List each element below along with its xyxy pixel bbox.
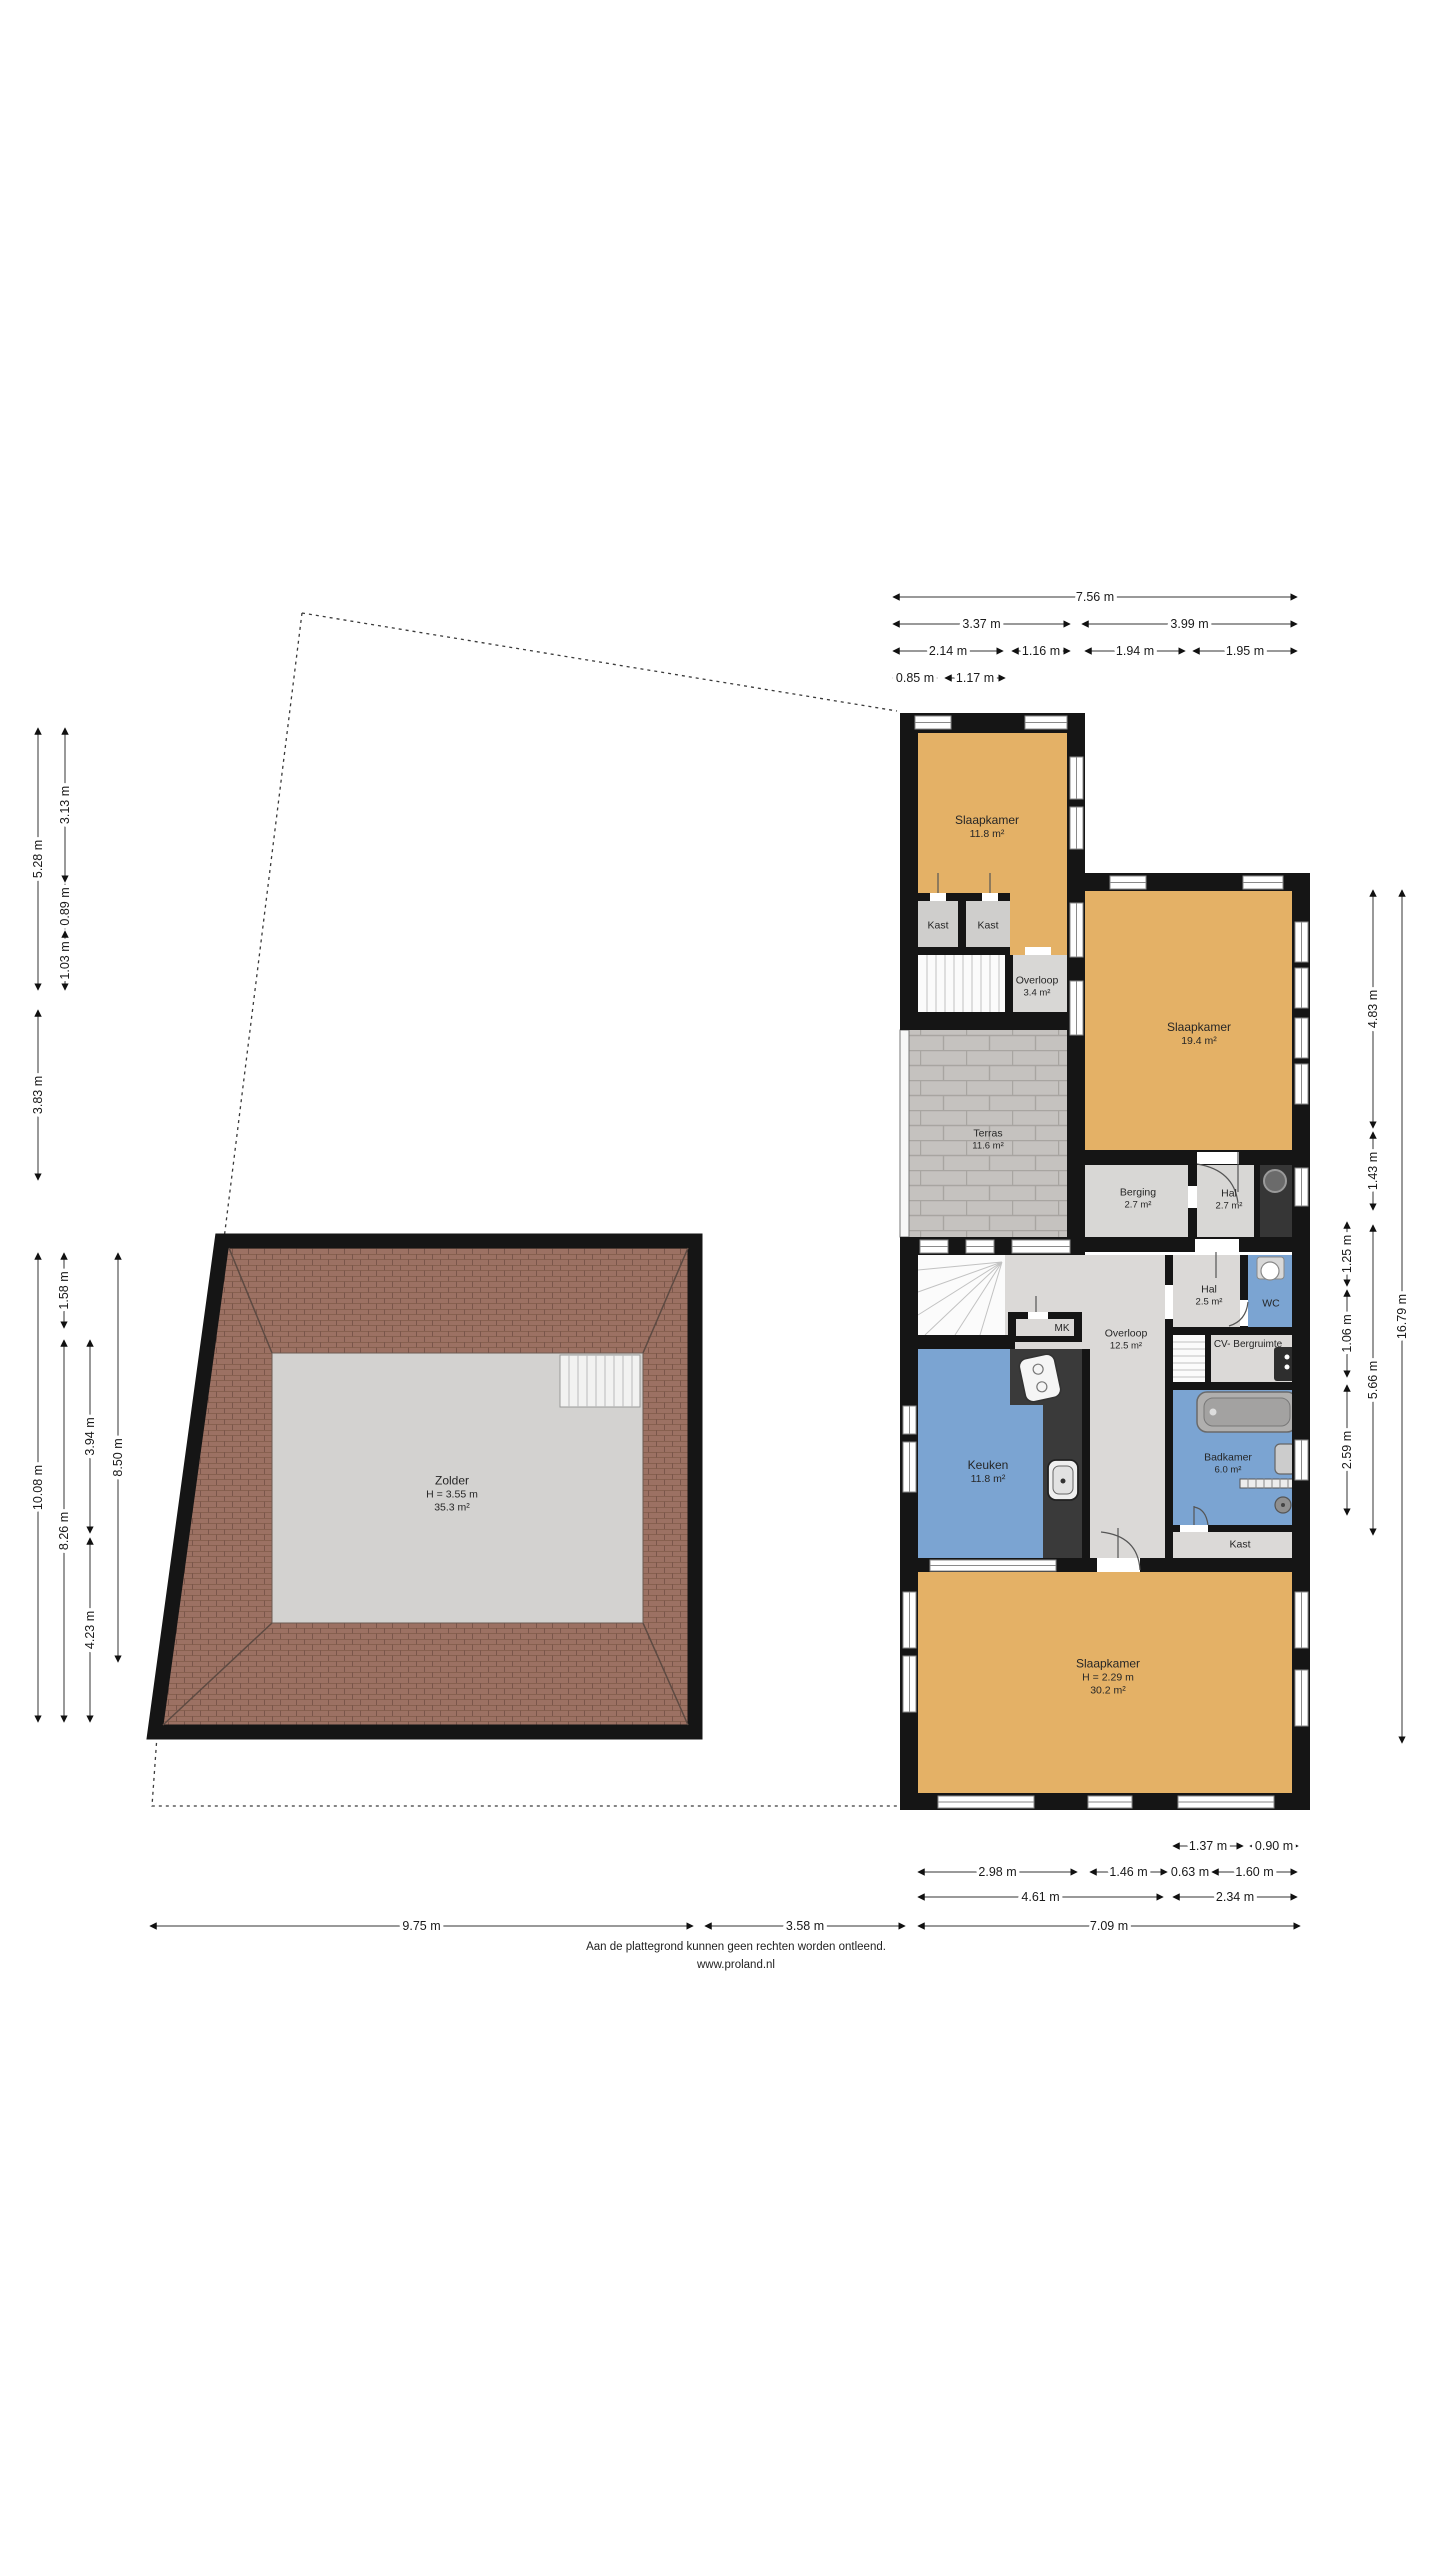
dimension-b358: 3.58 m xyxy=(705,1919,905,1933)
dimension-label: 0.63 m xyxy=(1171,1865,1209,1879)
dimension-label: 1.94 m xyxy=(1116,644,1154,658)
dimension-label: 8.50 m xyxy=(111,1438,125,1476)
dimension-l423: 4.23 m xyxy=(83,1538,97,1722)
wall-segment xyxy=(900,1012,1073,1030)
dimension-label: 4.61 m xyxy=(1021,1890,1059,1904)
dimension-r106: 1.06 m xyxy=(1340,1290,1354,1377)
dimension-label: 3.58 m xyxy=(786,1919,824,1933)
room-label-keuken: Keuken 11.8 m² xyxy=(968,1458,1009,1486)
window xyxy=(1243,876,1283,889)
dimension-label: 3.99 m xyxy=(1170,617,1208,631)
dimension-label: 1.60 m xyxy=(1235,1865,1273,1879)
door-opening xyxy=(1195,1239,1239,1252)
dimension-label: 2.14 m xyxy=(929,644,967,658)
dimension-b063: 0.63 m xyxy=(1170,1865,1210,1879)
dimension-l850: 8.50 m xyxy=(111,1253,125,1662)
footer-line2: www.proland.nl xyxy=(586,1956,886,1974)
footer-line1: Aan de plattegrond kunnen geen rechten w… xyxy=(586,1938,886,1956)
dimension-label: 1.17 m xyxy=(956,671,994,685)
dimension-label: 3.13 m xyxy=(58,786,72,824)
door-opening xyxy=(1025,947,1051,955)
room-label-slaapkamer1: Slaapkamer 11.8 m² xyxy=(955,813,1019,841)
window xyxy=(1295,1018,1308,1058)
window xyxy=(1295,1064,1308,1104)
window xyxy=(1295,1440,1308,1480)
wall-segment xyxy=(958,901,966,947)
dimension-label: 3.94 m xyxy=(83,1417,97,1455)
dimension-r483: 4.83 m xyxy=(1366,890,1380,1128)
door-opening xyxy=(982,893,998,901)
dimension-t194: 1.94 m xyxy=(1085,644,1185,658)
dimension-label: 1.25 m xyxy=(1340,1235,1354,1273)
wall-segment xyxy=(1005,955,1013,1012)
dimension-label: 1.03 m xyxy=(58,941,72,979)
room-label-terras: Terras 11.6 m² xyxy=(972,1128,1004,1153)
bathtub-icon xyxy=(1197,1392,1297,1432)
dimension-label: 2.59 m xyxy=(1340,1431,1354,1469)
kitchen-sink-icon xyxy=(1048,1460,1078,1500)
dimension-b709: 7.09 m xyxy=(918,1919,1300,1933)
window xyxy=(903,1406,916,1434)
door-opening xyxy=(1028,1312,1048,1319)
window xyxy=(966,1240,994,1253)
dimension-r143: 1.43 m xyxy=(1366,1132,1380,1210)
dimension-label: 1.58 m xyxy=(57,1271,71,1309)
window xyxy=(903,1592,916,1648)
room-label-berging: Berging 2.7 m² xyxy=(1120,1187,1156,1212)
door-opening xyxy=(1097,1558,1140,1572)
dimension-label: 4.23 m xyxy=(83,1611,97,1649)
zolder-building xyxy=(155,1241,695,1732)
window xyxy=(1070,757,1083,799)
dimension-l158: 1.58 m xyxy=(57,1253,71,1328)
dimension-l394: 3.94 m xyxy=(83,1340,97,1533)
window xyxy=(938,1796,1034,1808)
dimension-label: 5.28 m xyxy=(31,840,45,878)
window xyxy=(930,1560,1056,1571)
dimension-t195: 1.95 m xyxy=(1193,644,1297,658)
floor-plan-page: 7.56 m3.37 m3.99 m2.14 m1.16 m1.94 m1.95… xyxy=(0,0,1440,2560)
window xyxy=(1012,1240,1070,1253)
dimension-label: 1.46 m xyxy=(1109,1865,1147,1879)
dimension-t399: 3.99 m xyxy=(1082,617,1297,631)
dimension-t756: 7.56 m xyxy=(893,590,1297,604)
window xyxy=(1295,1592,1308,1648)
dimension-l313: 3.13 m xyxy=(58,728,72,882)
window xyxy=(1295,1670,1308,1726)
window xyxy=(1295,1168,1308,1206)
room-label-hal2: Hal 2.5 m² xyxy=(1196,1284,1223,1309)
wall-segment xyxy=(1008,1336,1082,1342)
dimension-b137: 1.37 m xyxy=(1173,1839,1243,1853)
terras-railing xyxy=(900,1030,909,1237)
window xyxy=(1070,981,1083,1035)
window xyxy=(903,1656,916,1712)
window xyxy=(903,1442,916,1492)
window xyxy=(915,716,951,729)
wall-segment xyxy=(900,1335,1015,1349)
dimension-t085: 0.85 m xyxy=(893,671,937,685)
door-opening xyxy=(930,893,946,901)
radiator-icon xyxy=(1240,1479,1297,1488)
wall-segment xyxy=(1067,1237,1310,1252)
dimension-label: 3.37 m xyxy=(962,617,1000,631)
window xyxy=(1178,1796,1274,1808)
dimension-t337: 3.37 m xyxy=(893,617,1070,631)
window xyxy=(1025,716,1067,729)
dimension-l826: 8.26 m xyxy=(57,1340,71,1722)
dimension-label: 16.79 m xyxy=(1395,1294,1409,1339)
window xyxy=(1110,876,1146,889)
window xyxy=(1295,922,1308,962)
footer-disclaimer: Aan de plattegrond kunnen geen rechten w… xyxy=(586,1938,886,1975)
dimension-b090: 0.90 m xyxy=(1250,1839,1298,1853)
dimension-r259: 2.59 m xyxy=(1340,1385,1354,1515)
room-label-wc: WC xyxy=(1262,1297,1280,1310)
dimension-l1008: 10.08 m xyxy=(31,1253,45,1722)
dimension-r566: 5.66 m xyxy=(1366,1225,1380,1535)
dimension-label: 2.98 m xyxy=(978,1865,1016,1879)
wall-segment xyxy=(1165,1382,1310,1390)
dimension-t117: 1.17 m xyxy=(945,671,1005,685)
room-label-badkamer: Badkamer 6.0 m² xyxy=(1204,1452,1252,1477)
wall-segment xyxy=(1254,1160,1260,1237)
dimension-b234: 2.34 m xyxy=(1173,1890,1297,1904)
room-label-slaapkamer3: Slaapkamer H = 2.29 m 30.2 m² xyxy=(1076,1656,1140,1697)
wc-sink-icon xyxy=(1257,1257,1284,1280)
door-opening xyxy=(1240,1300,1248,1326)
wall-segment xyxy=(1067,1150,1310,1165)
wall-segment xyxy=(1292,1255,1310,1570)
dimension-label: 10.08 m xyxy=(31,1465,45,1510)
room-label-zolder: Zolder H = 3.55 m 35.3 m² xyxy=(426,1473,478,1514)
dimension-r1679: 16.79 m xyxy=(1395,890,1409,1743)
stairs1 xyxy=(918,955,1005,1012)
dimension-label: 1.16 m xyxy=(1022,644,1060,658)
dimension-label: 3.83 m xyxy=(31,1076,45,1114)
floor-plan-drawing: 7.56 m3.37 m3.99 m2.14 m1.16 m1.94 m1.95… xyxy=(0,0,1440,2560)
dimension-t116: 1.16 m xyxy=(1012,644,1070,658)
wall-segment xyxy=(918,947,1010,955)
dimension-b146: 1.46 m xyxy=(1090,1865,1167,1879)
zolder-stairs-icon xyxy=(560,1355,640,1407)
dimension-label: 1.37 m xyxy=(1189,1839,1227,1853)
dimension-label: 7.56 m xyxy=(1076,590,1114,604)
dimension-t214: 2.14 m xyxy=(893,644,1003,658)
wall-segment xyxy=(1165,1327,1310,1335)
door-opening xyxy=(1180,1525,1208,1532)
dimension-l528: 5.28 m xyxy=(31,728,45,990)
room-label-slaapkamer2: Slaapkamer 19.4 m² xyxy=(1167,1020,1231,1048)
window xyxy=(1088,1796,1132,1808)
wall-segment xyxy=(1205,1335,1211,1382)
dimension-label: 1.43 m xyxy=(1366,1152,1380,1190)
dimension-label: 8.26 m xyxy=(57,1512,71,1550)
wall-segment xyxy=(1067,713,1085,891)
dimension-l089: 0.89 m xyxy=(58,884,72,929)
geyser-icon xyxy=(1264,1170,1286,1192)
room-label-overloop2: Overloop 12.5 m² xyxy=(1105,1328,1148,1353)
dimension-label: 0.90 m xyxy=(1255,1839,1293,1853)
shower-icon xyxy=(1275,1497,1291,1513)
dimension-label: 1.95 m xyxy=(1226,644,1264,658)
dimension-label: 0.89 m xyxy=(58,887,72,925)
dimension-r125: 1.25 m xyxy=(1340,1222,1354,1286)
room-label-overloop1: Overloop 3.4 m² xyxy=(1016,975,1059,1000)
dimension-b975: 9.75 m xyxy=(150,1919,693,1933)
wall-segment xyxy=(900,713,918,1030)
wall-segment xyxy=(1082,1349,1090,1558)
room-label-hal1: Hal 2.7 m² xyxy=(1216,1188,1243,1213)
dimension-label: 2.34 m xyxy=(1216,1890,1254,1904)
room-label-kast1: Kast xyxy=(927,919,948,932)
dimension-label: 1.06 m xyxy=(1340,1314,1354,1352)
door-opening xyxy=(1197,1152,1239,1164)
dimension-b160: 1.60 m xyxy=(1212,1865,1297,1879)
dimension-l383: 3.83 m xyxy=(31,1010,45,1180)
dimension-l103: 1.03 m xyxy=(58,931,72,990)
door-opening xyxy=(1188,1186,1197,1208)
room-label-kast2: Kast xyxy=(977,919,998,932)
door-opening xyxy=(1165,1285,1173,1319)
dimension-label: 7.09 m xyxy=(1090,1919,1128,1933)
window xyxy=(1070,903,1083,957)
room-label-kast3: Kast xyxy=(1229,1538,1250,1551)
dimension-label: 4.83 m xyxy=(1366,990,1380,1028)
window xyxy=(1070,807,1083,849)
dimension-label: 9.75 m xyxy=(402,1919,440,1933)
dimension-b461: 4.61 m xyxy=(918,1890,1163,1904)
room-label-mk: MK xyxy=(1055,1323,1070,1336)
window xyxy=(1295,968,1308,1008)
window xyxy=(920,1240,948,1253)
room-label-cv: CV- Bergruimte xyxy=(1214,1339,1282,1352)
dimension-b298: 2.98 m xyxy=(918,1865,1077,1879)
dimension-label: 0.85 m xyxy=(896,671,934,685)
dimension-label: 5.66 m xyxy=(1366,1361,1380,1399)
